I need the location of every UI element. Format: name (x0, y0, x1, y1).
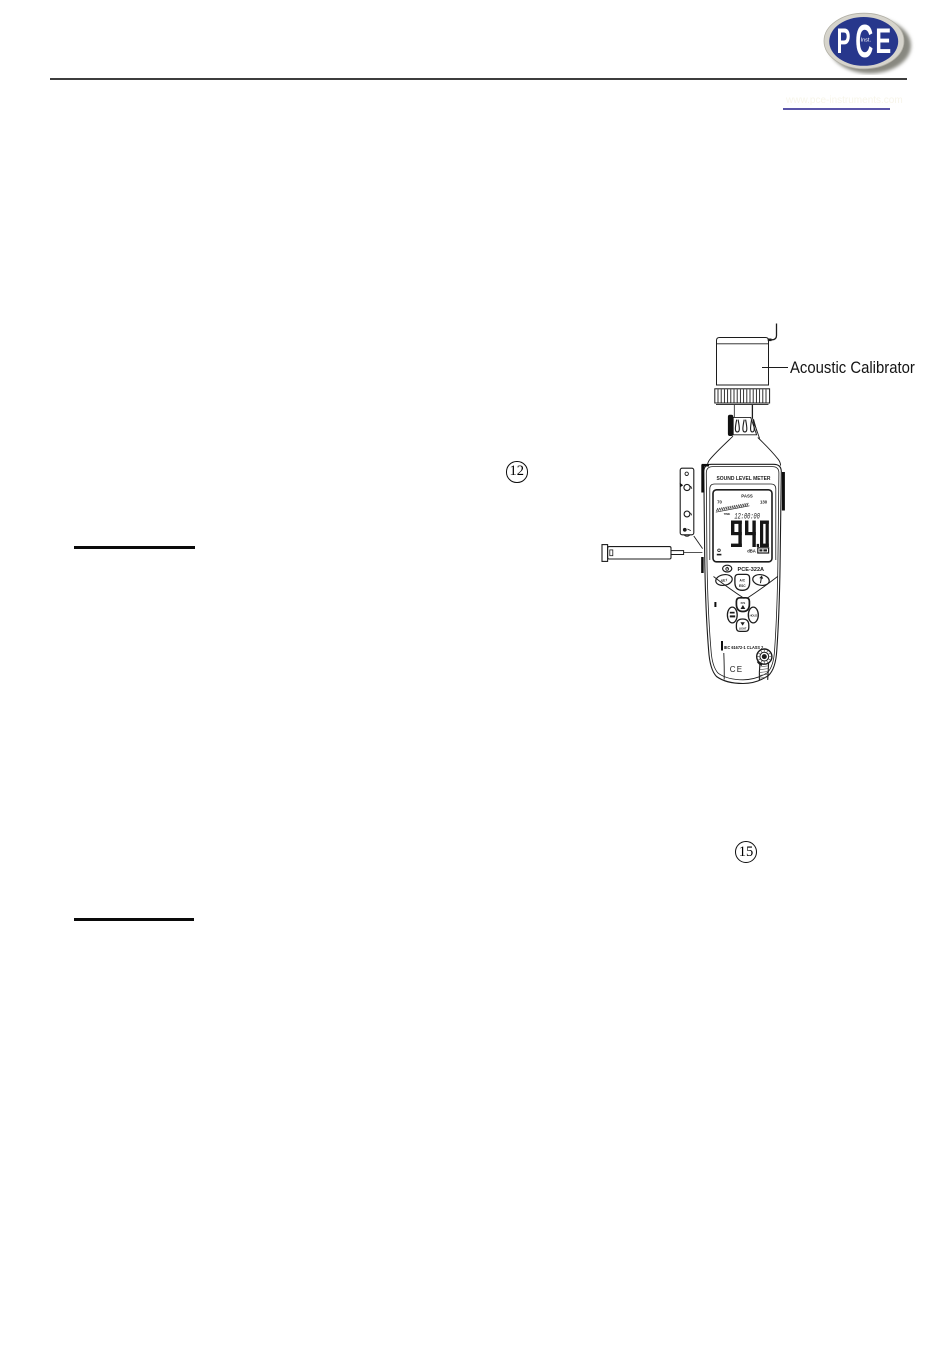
svg-text:PCE-322A: PCE-322A (738, 567, 765, 573)
svg-text:CE: CE (730, 665, 744, 674)
svg-text:LIGHT: LIGHT (739, 628, 747, 631)
svg-text:PASS: PASS (741, 494, 753, 499)
svg-text:HOLD: HOLD (750, 613, 758, 617)
svg-text:TIME: TIME (724, 512, 731, 516)
svg-text:A/C: A/C (740, 579, 746, 583)
svg-text:E: E (875, 21, 891, 61)
svg-text:130: 130 (760, 500, 768, 505)
svg-text:dBA: dBA (747, 549, 756, 554)
svg-text:P: P (837, 22, 851, 61)
svg-text:SOUND LEVEL METER: SOUND LEVEL METER (717, 476, 771, 482)
svg-text:F/S: F/S (741, 601, 746, 605)
svg-text:IEC 61672-1 CLASS 2: IEC 61672-1 CLASS 2 (724, 645, 764, 650)
svg-text:70: 70 (717, 500, 722, 505)
svg-text:Inst.: Inst. (861, 38, 872, 44)
svg-text:ESC: ESC (739, 584, 746, 588)
